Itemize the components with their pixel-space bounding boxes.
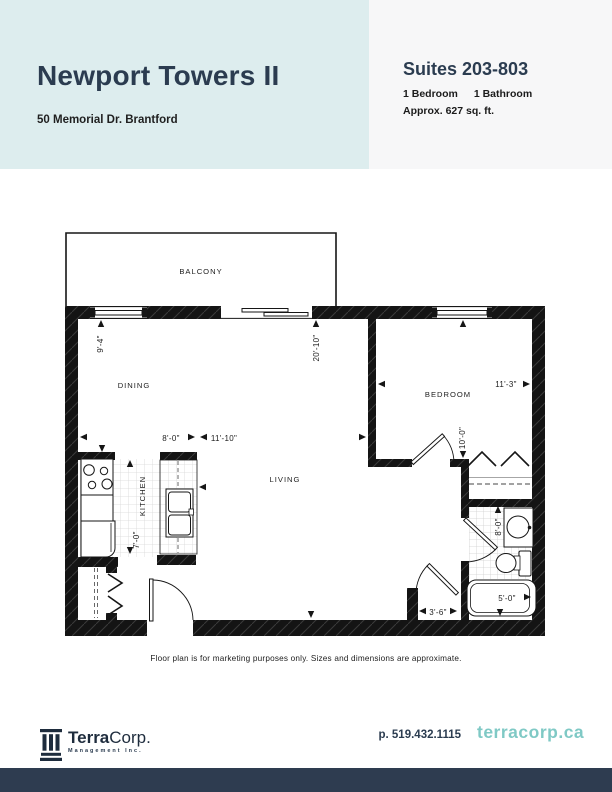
bedroom-count: 1 Bedroom <box>403 88 458 100</box>
terracorp-columns-icon <box>40 729 62 766</box>
terracorp-logo: TerraCorp. Management Inc. <box>40 729 151 766</box>
dim-kitchen-width: 8'-0" <box>162 434 179 443</box>
dim-bathroom-depth: 8'-0" <box>494 518 503 535</box>
bathroom-count: 1 Bathroom <box>474 88 532 100</box>
bedroom-window <box>432 307 492 319</box>
living-label: LIVING <box>270 475 301 484</box>
kitchen-counter <box>81 495 113 521</box>
bedroom-closet-bifold-doors <box>468 452 529 466</box>
logo-wordmark: TerraCorp. <box>68 729 151 746</box>
dining-window <box>90 307 147 319</box>
bedroom-label: BEDROOM <box>425 390 471 399</box>
dim-hall-width: 3'-6" <box>429 608 446 617</box>
dim-tub-length: 5'-0" <box>498 594 515 603</box>
disclaimer-text: Floor plan is for marketing purposes onl… <box>150 654 461 663</box>
phone-number: p. 519.432.1115 <box>340 729 461 741</box>
dim-living-length: 20'-10" <box>312 335 321 362</box>
bathroom-vanity-sink <box>504 508 533 547</box>
page-title: Newport Towers II <box>37 60 279 92</box>
entry-closet-bifold-doors <box>108 574 122 615</box>
property-address: 50 Memorial Dr. Brantford <box>37 114 178 126</box>
dim-bedroom-width: 11'-3" <box>495 380 517 389</box>
kitchen-label: KITCHEN <box>138 476 147 516</box>
balcony-label: BALCONY <box>179 267 222 276</box>
dim-dining-width: 9'-4" <box>96 335 105 352</box>
website-link[interactable]: terracorp.ca <box>477 722 584 743</box>
header-left-panel: Newport Towers II 50 Memorial Dr. Brantf… <box>0 0 369 169</box>
kitchen-sink <box>166 489 194 537</box>
fridge <box>81 521 115 557</box>
dim-bedroom-depth: 10'-0" <box>458 427 467 449</box>
suite-area: Approx. 627 sq. ft. <box>403 105 494 117</box>
suite-range: Suites 203-803 <box>403 59 528 80</box>
entry-door <box>150 579 194 621</box>
dining-label: DINING <box>118 381 151 390</box>
floor-plan: BALCONY DINING LIVING BEDROOM KITCHEN 9'… <box>0 180 612 690</box>
logo-subtitle: Management Inc. <box>68 748 151 754</box>
balcony-sliding-door <box>221 309 312 319</box>
bedroom-door <box>411 434 454 465</box>
stove <box>81 459 113 495</box>
header-right-panel: Suites 203-803 1 Bedroom1 Bathroom Appro… <box>369 0 612 169</box>
dim-living-width: 11'-10" <box>211 434 237 443</box>
hall-closet-door <box>416 564 458 595</box>
footer-bar <box>0 768 612 792</box>
dim-kitchen-depth: 7'-0" <box>132 531 141 548</box>
suite-specs: 1 Bedroom1 Bathroom <box>403 88 532 100</box>
